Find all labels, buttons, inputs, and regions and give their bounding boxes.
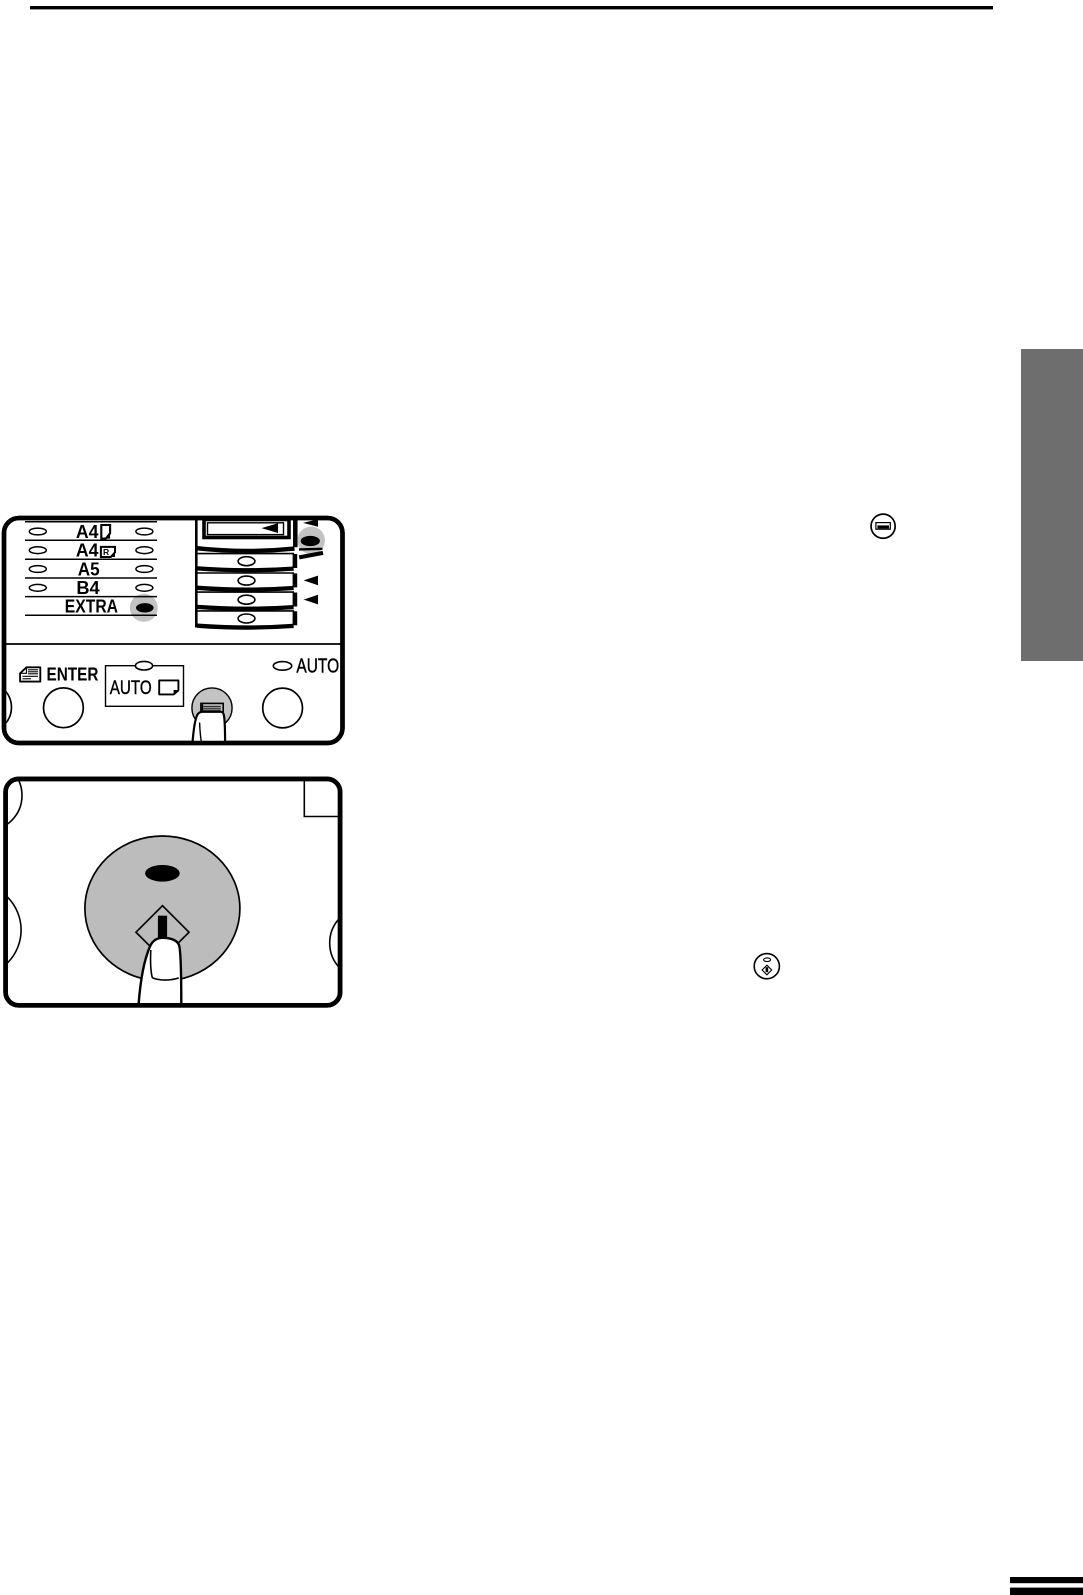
svg-text:AUTO: AUTO [296, 656, 339, 678]
svg-text:R: R [103, 547, 110, 557]
svg-text:ENTER: ENTER [47, 663, 99, 684]
svg-text:AUTO: AUTO [110, 677, 152, 699]
svg-text:EXTRA: EXTRA [65, 596, 118, 617]
svg-text:A4: A4 [76, 540, 99, 561]
